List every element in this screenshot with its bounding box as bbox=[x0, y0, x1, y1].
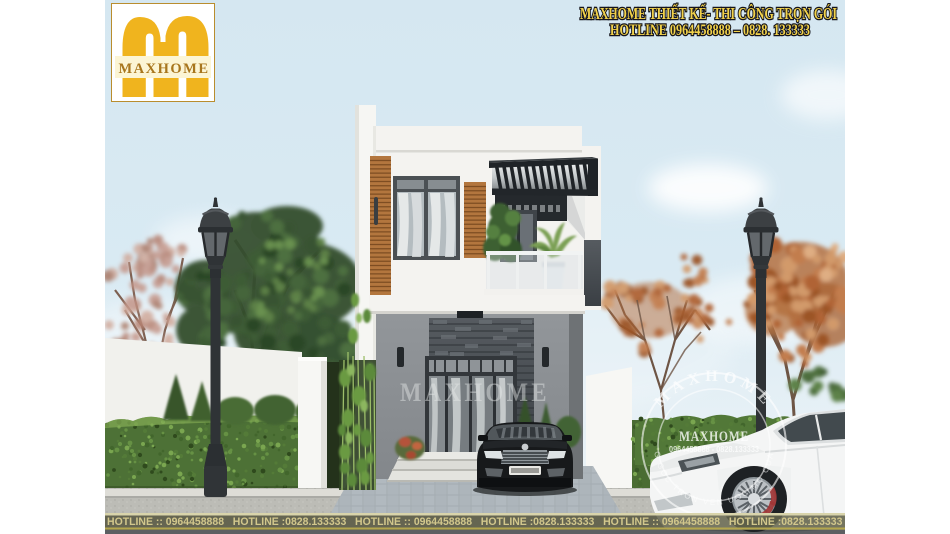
svg-text:MAXHOME THIẾT KẾ- THI CÔNG TRỌ: MAXHOME THIẾT KẾ- THI CÔNG TRỌN GÓI bbox=[580, 4, 837, 23]
svg-text:HOTLINE 0964458888 – 0828. 133: HOTLINE 0964458888 – 0828. 133333 bbox=[610, 22, 810, 39]
svg-text:MAXHOME: MAXHOME bbox=[679, 429, 749, 445]
svg-text:MAXHOME: MAXHOME bbox=[400, 378, 550, 407]
svg-text:MAXHOME: MAXHOME bbox=[118, 61, 209, 77]
svg-text:HOTLINE :: 0964458888 HOTLIN: HOTLINE :: 0964458888 HOTLINE :0828.1333… bbox=[107, 516, 845, 528]
svg-text:0964458888 - 0828.133333: 0964458888 - 0828.133333 bbox=[669, 445, 759, 454]
